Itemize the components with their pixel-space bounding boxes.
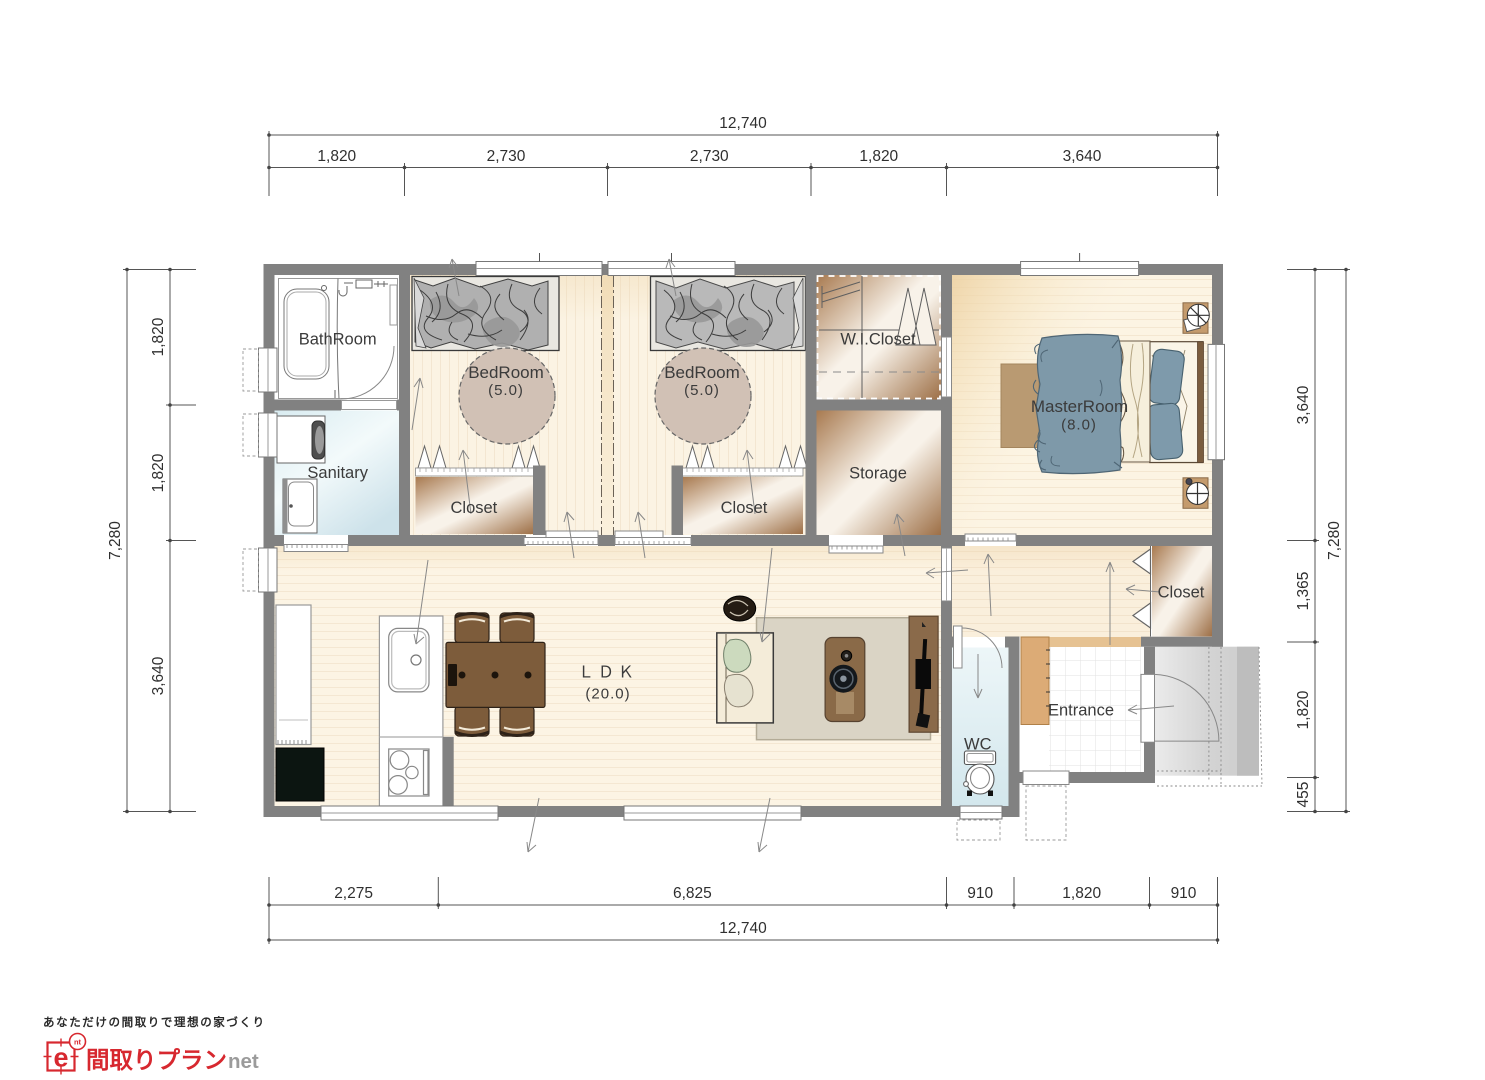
svg-text:ＬＤＫ: ＬＤＫ [578, 665, 638, 682]
svg-text:3,640: 3,640 [150, 656, 167, 695]
svg-text:(8.0): (8.0) [1061, 417, 1097, 434]
svg-text:Storage: Storage [849, 465, 907, 483]
svg-text:Closet: Closet [451, 499, 498, 517]
svg-text:1,820: 1,820 [150, 317, 167, 356]
svg-text:12,740: 12,740 [719, 920, 767, 937]
svg-text:6,825: 6,825 [673, 885, 712, 902]
svg-text:BedRoom: BedRoom [468, 363, 544, 382]
svg-text:2,730: 2,730 [487, 148, 526, 165]
svg-text:Closet: Closet [721, 499, 768, 517]
svg-text:910: 910 [1171, 885, 1197, 902]
svg-text:間取りプラン: 間取りプラン [86, 1047, 227, 1073]
svg-text:910: 910 [967, 885, 993, 902]
svg-text:net: net [228, 1050, 259, 1073]
svg-text:nt: nt [74, 1038, 82, 1047]
svg-text:1,820: 1,820 [1062, 885, 1101, 902]
svg-text:7,280: 7,280 [1326, 521, 1343, 560]
svg-text:Closet: Closet [1158, 584, 1205, 602]
svg-text:W.I.Closet: W.I.Closet [840, 331, 916, 349]
svg-text:1,820: 1,820 [317, 148, 356, 165]
svg-text:3,640: 3,640 [1295, 385, 1312, 424]
svg-text:Entrance: Entrance [1048, 702, 1114, 720]
svg-text:1,820: 1,820 [859, 148, 898, 165]
svg-text:1,820: 1,820 [1295, 690, 1312, 729]
svg-text:Sanitary: Sanitary [307, 464, 368, 482]
svg-text:12,740: 12,740 [719, 115, 767, 132]
svg-text:(20.0): (20.0) [585, 686, 630, 703]
svg-text:(5.0): (5.0) [684, 382, 720, 399]
svg-text:2,275: 2,275 [334, 885, 373, 902]
svg-text:e: e [53, 1043, 68, 1073]
svg-text:あなただけの間取りで理想の家づくり: あなただけの間取りで理想の家づくり [43, 1015, 266, 1029]
svg-text:3,640: 3,640 [1063, 148, 1102, 165]
svg-text:2,730: 2,730 [690, 148, 729, 165]
svg-text:BathRoom: BathRoom [299, 331, 377, 349]
svg-text:1,365: 1,365 [1295, 572, 1312, 611]
svg-text:BedRoom: BedRoom [664, 363, 740, 382]
svg-text:(5.0): (5.0) [488, 382, 524, 399]
svg-text:WC: WC [964, 736, 992, 754]
svg-text:7,280: 7,280 [107, 521, 124, 560]
svg-text:455: 455 [1295, 782, 1312, 808]
svg-text:1,820: 1,820 [150, 453, 167, 492]
svg-text:MasterRoom: MasterRoom [1031, 397, 1128, 416]
